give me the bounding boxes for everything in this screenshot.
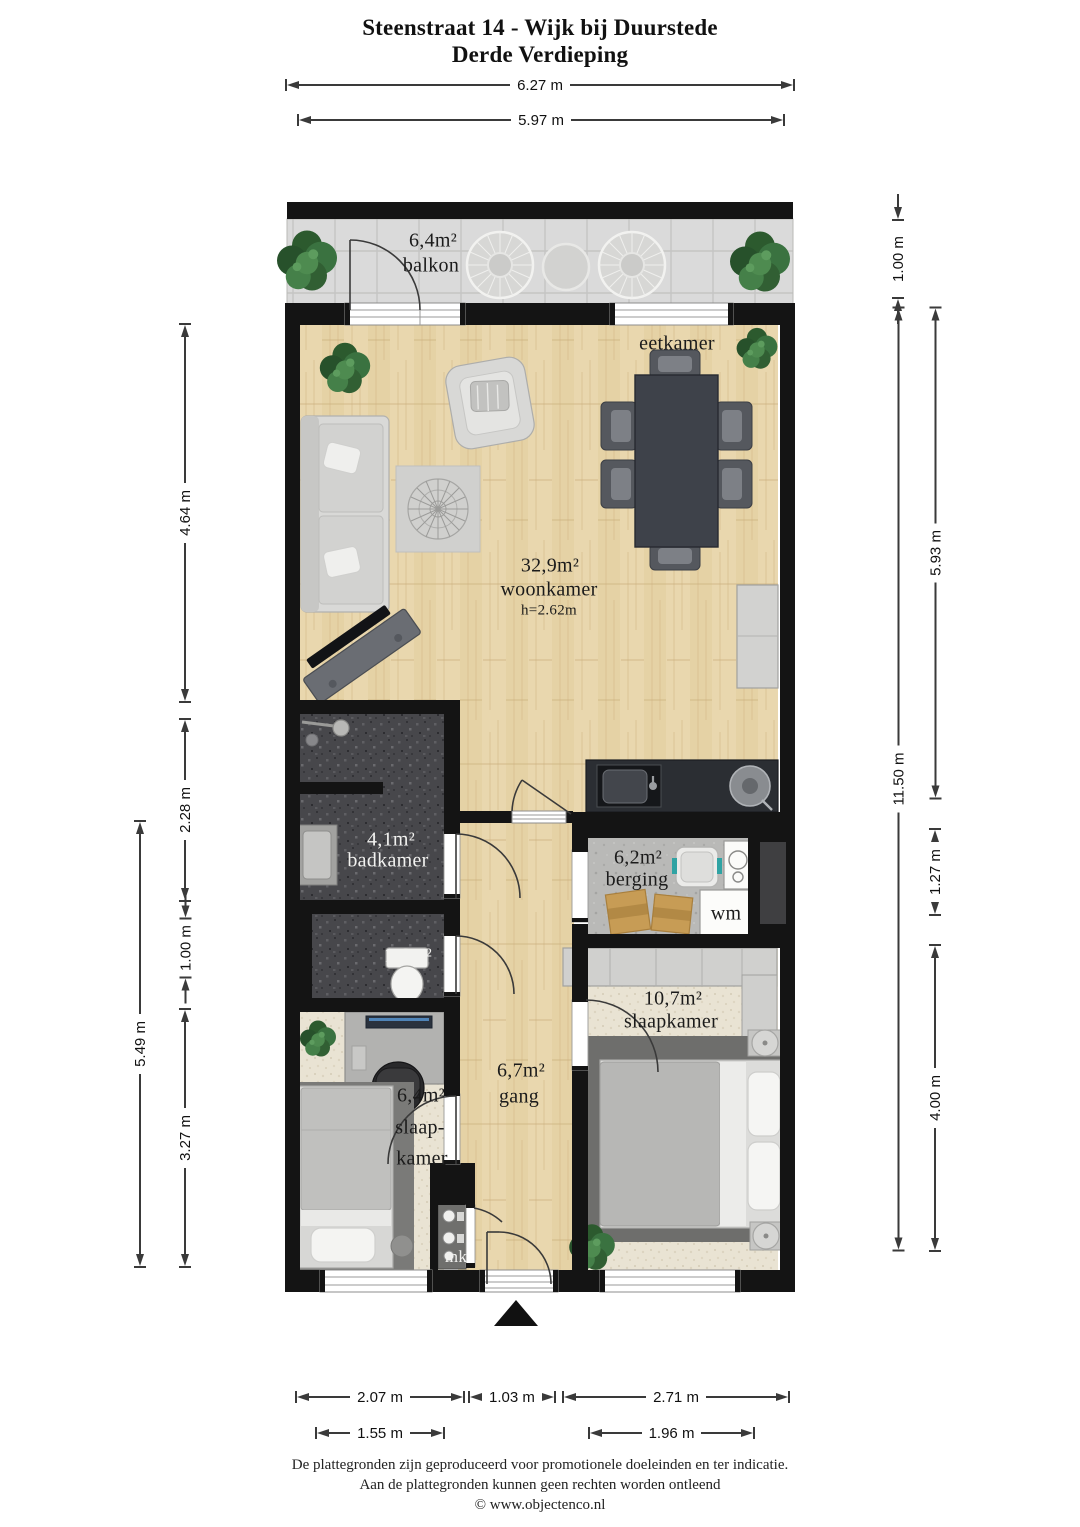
room-label-wasmachine: wm <box>711 903 742 926</box>
room-label-balkon: balkon <box>403 255 459 278</box>
room-label-meterkast: mk <box>445 1247 467 1267</box>
dim-left-2: 2.28 m <box>176 718 194 902</box>
floorplan <box>0 0 1080 1527</box>
dim-left-total: 5.49 m <box>131 820 149 1268</box>
room-label-slaapkamer-links-2: kamer <box>396 1148 447 1171</box>
room-label-slaapkamer-links-area: 6,4m² <box>397 1085 445 1108</box>
disclaimer-line-2: Aan de plattegronden kunnen geen rechten… <box>0 1475 1080 1495</box>
room-label-slaapkamer-links-1: slaap- <box>395 1117 445 1140</box>
hall-floor-upper <box>458 762 588 812</box>
dim-top-total: 6.27 m <box>285 76 795 94</box>
hall-floor <box>458 812 574 1272</box>
room-label-woonkamer-area: 32,9m² <box>521 555 579 578</box>
balcony-chair <box>467 232 533 298</box>
sofa <box>301 416 389 612</box>
double-bed <box>600 1060 784 1228</box>
coffee-table <box>396 466 480 552</box>
room-label-gang: gang <box>499 1086 539 1109</box>
dim-right-3: 4.00 m <box>926 944 944 1252</box>
dim-right-balkon: 1.00 m <box>889 194 907 324</box>
balcony-floor <box>287 219 793 307</box>
floorplan-page: Steenstraat 14 - Wijk bij Duurstede Derd… <box>0 0 1080 1527</box>
kitchen-counter <box>586 760 778 812</box>
dim-bottom-inner-2: 1.96 m <box>588 1424 755 1442</box>
room-label-toilet-area: 1,6m² <box>384 945 432 968</box>
room-label-slaapkamer-rechts-area: 10,7m² <box>644 988 702 1011</box>
dim-bottom-inner-1: 1.55 m <box>315 1424 445 1442</box>
storage-basket <box>672 847 722 887</box>
room-label-balkon-area: 6,4m² <box>409 230 457 253</box>
dim-left-4: 3.27 m <box>176 1008 194 1268</box>
dim-left-1: 4.64 m <box>176 323 194 703</box>
armchair <box>443 355 536 452</box>
shaft <box>760 842 786 924</box>
single-bed <box>299 1086 393 1268</box>
room-label-badkamer: badkamer <box>347 850 428 873</box>
dim-right-total: 11.50 m <box>890 307 908 1252</box>
room-label-berging: berging <box>606 869 669 892</box>
dim-bottom-3: 2.71 m <box>562 1388 790 1406</box>
dim-top-inner: 5.97 m <box>297 111 785 129</box>
room-label-berging-area: 6,2m² <box>614 847 662 870</box>
dim-left-3: 1.00 m <box>177 893 195 1004</box>
dim-bottom-2: 1.03 m <box>468 1388 558 1406</box>
storage-sink-unit <box>724 841 752 889</box>
dim-bottom-1: 2.07 m <box>295 1388 465 1406</box>
nightstand <box>748 1030 782 1056</box>
entrance-arrow-icon <box>494 1300 538 1326</box>
copyright: © www.objectenco.nl <box>0 1495 1080 1515</box>
bathroom-sink <box>297 825 337 885</box>
room-label-badkamer-area: 4,1m² <box>367 829 415 852</box>
balcony-table <box>543 244 589 290</box>
sideboard <box>737 585 778 688</box>
nightstand <box>750 1222 782 1250</box>
storage-box <box>651 894 693 934</box>
disclaimer-line-1: De plattegronden zijn geproduceerd voor … <box>0 1455 1080 1475</box>
room-label-gang-area: 6,7m² <box>497 1060 545 1083</box>
disclaimer: De plattegronden zijn geproduceerd voor … <box>0 1455 1080 1515</box>
dim-right-2: 1.27 m <box>926 812 944 916</box>
room-label-woonkamer: woonkamer <box>500 579 597 602</box>
pouf <box>391 1235 413 1257</box>
balcony-chair <box>599 232 665 298</box>
room-label-slaapkamer-rechts: slaapkamer <box>624 1011 718 1034</box>
storage-box <box>605 889 650 934</box>
room-label-woonkamer-height: h=2.62m <box>521 603 577 620</box>
dim-right-1: 5.93 m <box>927 307 945 800</box>
room-label-eetkamer: eetkamer <box>639 333 715 356</box>
